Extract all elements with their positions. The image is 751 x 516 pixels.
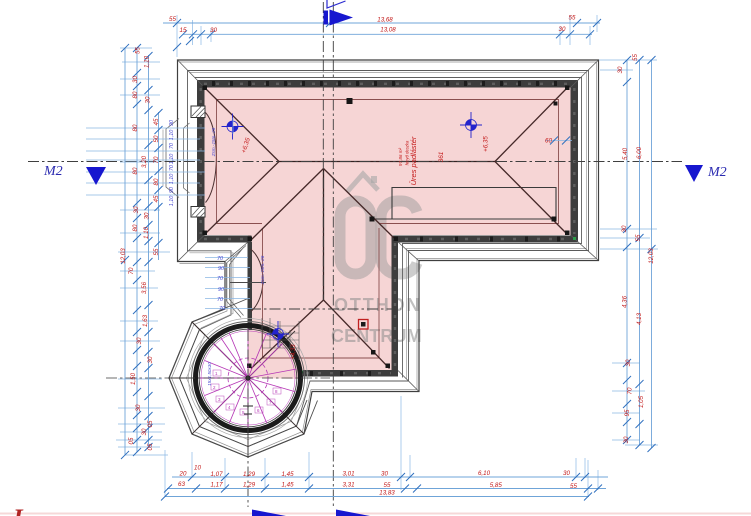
svg-text:30: 30 [381,471,388,478]
svg-text:12,03: 12,03 [648,248,655,264]
svg-text:55: 55 [570,483,577,490]
svg-text:1,45: 1,45 [281,482,294,489]
svg-text:70: 70 [169,165,175,171]
svg-text:20: 20 [179,471,187,478]
svg-text:70: 70 [217,297,223,303]
svg-text:55: 55 [632,54,639,61]
svg-text:30: 30 [136,337,143,344]
svg-text:1,45: 1,45 [281,471,294,478]
svg-text:05: 05 [128,437,135,444]
svg-text:1,10: 1,10 [143,55,150,68]
svg-text:50: 50 [153,135,160,142]
svg-text:55: 55 [135,47,142,54]
svg-text:55: 55 [153,248,160,255]
svg-text:97,86 m²: 97,86 m² [398,147,403,166]
svg-text:70: 70 [219,306,225,312]
svg-text:3,01: 3,01 [342,471,354,478]
svg-text:1,29: 1,29 [243,471,256,478]
svg-text:1,05: 1,05 [638,395,645,408]
svg-text:5,40: 5,40 [622,147,629,160]
svg-text:55: 55 [569,15,576,22]
svg-text:80: 80 [153,178,160,185]
svg-text:Zsm.-15m.-28: Zsm.-15m.-28 [260,255,265,285]
svg-text:15x1,50x30: 15x1,50x30 [207,362,212,386]
svg-text:30: 30 [135,404,142,411]
svg-text:55: 55 [384,482,391,489]
svg-text:13,83: 13,83 [379,490,395,497]
svg-text:30: 30 [625,359,632,366]
svg-text:80: 80 [132,91,139,98]
svg-text:70: 70 [169,143,175,149]
svg-text:1,63: 1,63 [142,314,149,327]
svg-text:Zsm.-15m.-28: Zsm.-15m.-28 [211,127,216,157]
svg-text:1,29: 1,29 [243,482,256,489]
svg-text:05: 05 [147,420,154,427]
svg-text:30: 30 [132,76,139,83]
svg-text:13,08: 13,08 [380,27,396,34]
svg-text:+4,33: +4,33 [291,344,297,360]
svg-text:30: 30 [145,96,152,103]
svg-text:3,20: 3,20 [141,155,148,168]
svg-text:30: 30 [621,225,628,232]
svg-text:45: 45 [153,195,160,202]
svg-text:30: 30 [144,212,151,219]
svg-text:1,10: 1,10 [143,226,150,239]
svg-text:30: 30 [133,206,140,213]
svg-text:80: 80 [132,167,139,174]
svg-text:05: 05 [147,443,154,450]
svg-text:13,68: 13,68 [377,17,393,24]
svg-text:3,31: 3,31 [342,482,354,489]
svg-text:60: 60 [545,138,552,145]
svg-text:4,36: 4,36 [622,295,629,308]
svg-text:30: 30 [141,428,148,435]
svg-text:1,10: 1,10 [169,154,175,165]
svg-text:1,50: 1,50 [130,372,137,385]
svg-text:80: 80 [132,224,139,231]
svg-text:30: 30 [559,26,566,33]
svg-text:90: 90 [218,266,224,272]
svg-text:30: 30 [617,66,624,73]
svg-text:90: 90 [169,120,175,126]
svg-text:I: I [12,505,24,516]
svg-text:361: 361 [438,151,445,162]
svg-text:30: 30 [623,436,630,443]
svg-text:70: 70 [627,387,634,394]
svg-text:6,10: 6,10 [478,470,491,477]
svg-text:+6,35: +6,35 [483,136,490,152]
svg-text:63: 63 [178,481,185,488]
svg-text:70: 70 [217,276,223,282]
svg-text:1,07: 1,07 [210,471,223,478]
svg-text:70: 70 [153,156,160,163]
svg-text:4,13: 4,13 [636,312,643,325]
svg-text:1,10: 1,10 [169,196,175,207]
svg-text:55: 55 [635,234,642,241]
svg-text:12,03: 12,03 [120,248,127,264]
svg-text:15: 15 [180,27,187,34]
svg-text:Üres padlástér: Üres padlástér [409,136,418,185]
svg-text:80: 80 [132,124,139,131]
svg-text:30: 30 [563,470,570,477]
svg-text:1,17: 1,17 [210,482,223,489]
svg-text:M2: M2 [707,165,727,180]
svg-text:30: 30 [147,356,154,363]
svg-text:90: 90 [218,287,224,293]
svg-text:1,10: 1,10 [169,174,175,185]
svg-text:3,56: 3,56 [141,281,148,294]
svg-text:95: 95 [624,409,631,416]
svg-text:70: 70 [217,256,223,262]
svg-text:6,00: 6,00 [636,146,643,159]
svg-text:fenyő deszka: fenyő deszka [405,140,410,165]
svg-text:90: 90 [169,187,175,193]
svg-text:55: 55 [169,16,176,23]
svg-text:45: 45 [153,118,160,125]
svg-text:10: 10 [194,465,201,472]
svg-text:M2: M2 [43,164,63,179]
svg-text:70: 70 [128,267,135,274]
svg-text:5,85: 5,85 [490,482,503,489]
svg-text:1,10: 1,10 [169,130,175,141]
svg-text:30: 30 [210,27,217,34]
